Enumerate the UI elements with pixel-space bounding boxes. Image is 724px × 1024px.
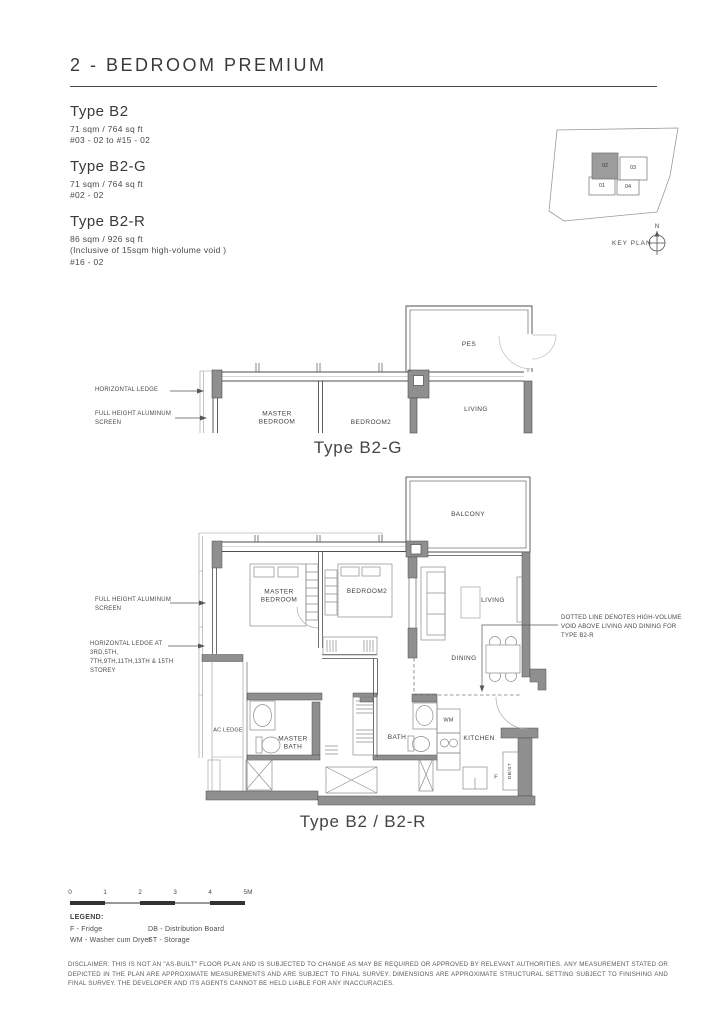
scale-tick-1: 1 xyxy=(103,889,107,896)
type-b2g-levels: #02 - 02 xyxy=(70,190,104,200)
type-b2-levels: #03 - 02 to #15 - 02 xyxy=(70,135,150,145)
room-label-pes: PES xyxy=(462,341,476,349)
scale-end-label: 5M xyxy=(243,889,252,896)
room-label-living: LIVING xyxy=(481,597,505,605)
scale-tick-4: 4 xyxy=(208,889,212,896)
pes-gate-swing-arc xyxy=(499,335,556,369)
plan-b2g-drawing xyxy=(170,306,556,433)
type-b2r-name: Type B2-R xyxy=(70,213,145,230)
room-label-living: LIVING xyxy=(464,406,488,414)
scale-bar xyxy=(70,901,245,905)
key-plan-unit-02-highlighted: 02 xyxy=(602,163,608,169)
legend-item-wm: WM - Washer cum Dryer xyxy=(70,937,151,944)
annotation-void-note: DOTTED LINE DENOTES HIGH-VOLUME VOID ABO… xyxy=(561,614,683,641)
scale-tick-2: 2 xyxy=(138,889,142,896)
room-label-bedroom2: BEDROOM2 xyxy=(347,588,387,596)
title-divider xyxy=(70,86,657,87)
appliance-label-fridge: F xyxy=(494,774,498,781)
key-plan-label: KEY PLAN xyxy=(612,240,652,247)
disclaimer-text: DISCLAIMER: THIS IS NOT AN "AS-BUILT" FL… xyxy=(68,960,668,989)
room-label-balcony: BALCONY xyxy=(451,511,485,519)
legend-item-db: DB - Distribution Board xyxy=(148,926,224,933)
legend-title: LEGEND: xyxy=(70,914,104,921)
key-plan-unit-03: 03 xyxy=(630,165,636,171)
annotation-horizontal-ledge-storeys: HORIZONTAL LEDGE AT 3RD,5TH, 7TH,9TH,11T… xyxy=(90,640,180,676)
type-b2-name: Type B2 xyxy=(70,103,129,120)
type-b2r-levels: #16 - 02 xyxy=(70,257,104,267)
type-b2r-area: 86 sqm / 926 sq ft xyxy=(70,234,143,244)
room-label-bedroom2: BEDROOM2 xyxy=(351,419,391,427)
type-b2g-area: 71 sqm / 764 sq ft xyxy=(70,179,143,189)
type-b2-area: 71 sqm / 764 sq ft xyxy=(70,124,143,134)
room-label-bath: BATH xyxy=(388,734,406,742)
appliance-label-wm: WM xyxy=(443,717,453,724)
type-b2r-note: (Inclusive of 15sqm high-volume void ) xyxy=(70,245,226,255)
plan-b2-drawing xyxy=(168,477,558,805)
legend-item-fridge: F - Fridge xyxy=(70,926,102,933)
label-db-st: DB/ST xyxy=(507,763,513,779)
floor-plan-page: 2 - BEDROOM PREMIUM Type B2 71 sqm / 764… xyxy=(0,0,724,1024)
room-label-master-bedroom: MASTER BEDROOM xyxy=(253,411,301,428)
room-label-ac-ledge: AC LEDGE xyxy=(213,727,242,734)
type-b2g-name: Type B2-G xyxy=(70,158,146,175)
plan-b2g-caption: Type B2-G xyxy=(314,438,402,458)
annotation-full-height-screen: FULL HEIGHT ALUMINUM SCREEN xyxy=(95,596,177,614)
legend-item-st: ST - Storage xyxy=(148,937,190,944)
key-plan-unit-04: 04 xyxy=(625,184,631,190)
plan-b2-caption: Type B2 / B2-R xyxy=(300,812,426,832)
key-plan-drawing xyxy=(549,128,678,255)
key-plan-unit-01: 01 xyxy=(599,183,605,189)
room-label-kitchen: KITCHEN xyxy=(463,735,494,743)
room-label-master-bedroom: MASTER BEDROOM xyxy=(255,589,303,606)
annotation-horizontal-ledge: HORIZONTAL LEDGE xyxy=(95,386,158,395)
room-label-master-bath: MASTER BATH xyxy=(272,736,314,753)
scale-tick-0: 0 xyxy=(68,889,72,896)
floor-plan-drawing-layer xyxy=(0,0,724,1024)
scale-tick-3: 3 xyxy=(173,889,177,896)
page-title: 2 - BEDROOM PREMIUM xyxy=(70,55,327,76)
annotation-full-height-screen: FULL HEIGHT ALUMINUM SCREEN xyxy=(95,410,175,428)
room-label-dining: DINING xyxy=(451,655,476,663)
north-label: N xyxy=(655,224,659,230)
